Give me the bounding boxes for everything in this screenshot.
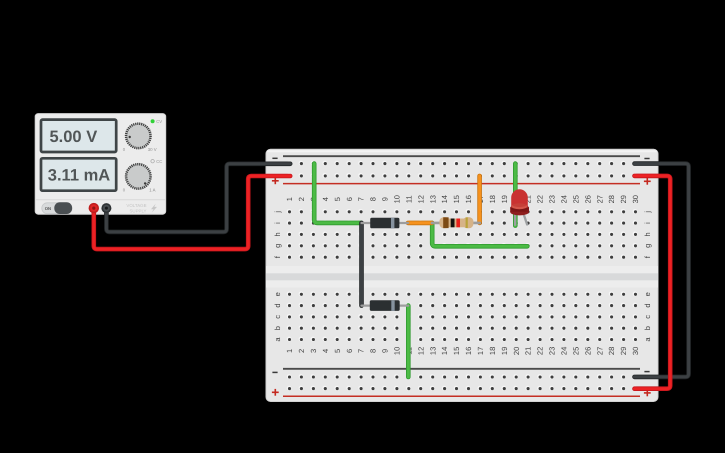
svg-text:c: c <box>273 315 282 319</box>
svg-text:j: j <box>643 211 652 214</box>
svg-text:CV: CV <box>156 119 162 124</box>
svg-text:15: 15 <box>452 347 461 355</box>
svg-text:2: 2 <box>297 349 306 353</box>
svg-text:1: 1 <box>285 349 294 353</box>
svg-text:23: 23 <box>548 195 557 203</box>
svg-text:18: 18 <box>488 347 497 355</box>
svg-text:28: 28 <box>607 347 616 355</box>
svg-text:27: 27 <box>595 347 604 355</box>
svg-text:6: 6 <box>345 197 354 201</box>
svg-text:22: 22 <box>536 347 545 355</box>
svg-text:5.00 V: 5.00 V <box>50 128 98 146</box>
svg-text:27: 27 <box>595 195 604 203</box>
svg-text:23: 23 <box>548 347 557 355</box>
svg-text:b: b <box>643 326 652 330</box>
svg-text:30: 30 <box>631 347 640 355</box>
svg-text:g: g <box>643 244 652 248</box>
svg-text:12: 12 <box>416 347 425 355</box>
svg-text:3: 3 <box>309 349 318 353</box>
svg-text:b: b <box>273 326 282 330</box>
svg-text:11: 11 <box>404 195 413 203</box>
svg-text:14: 14 <box>440 347 449 355</box>
svg-text:15: 15 <box>452 195 461 203</box>
svg-text:1: 1 <box>285 197 294 201</box>
svg-text:9: 9 <box>381 197 390 201</box>
svg-text:9: 9 <box>381 349 390 353</box>
svg-text:ON: ON <box>45 206 51 211</box>
svg-text:21: 21 <box>524 347 533 355</box>
svg-text:7: 7 <box>357 197 366 201</box>
svg-text:g: g <box>273 244 282 248</box>
svg-text:h: h <box>273 232 282 236</box>
svg-text:24: 24 <box>560 195 569 203</box>
svg-text:30 V: 30 V <box>148 147 157 152</box>
svg-text:4: 4 <box>321 349 330 353</box>
svg-text:14: 14 <box>440 195 449 203</box>
svg-text:13: 13 <box>428 347 437 355</box>
svg-text:SUPPLY: SUPPLY <box>129 208 146 213</box>
svg-text:30: 30 <box>631 195 640 203</box>
svg-text:VOLTAGE: VOLTAGE <box>126 203 146 208</box>
svg-text:16: 16 <box>464 195 473 203</box>
svg-text:d: d <box>273 304 282 308</box>
svg-text:1 A: 1 A <box>149 187 155 192</box>
svg-text:e: e <box>273 292 282 296</box>
svg-text:22: 22 <box>536 195 545 203</box>
svg-text:25: 25 <box>571 347 580 355</box>
svg-text:CC: CC <box>156 159 162 164</box>
svg-text:10: 10 <box>393 195 402 203</box>
svg-text:3.11 mA: 3.11 mA <box>48 166 110 184</box>
svg-text:18: 18 <box>488 195 497 203</box>
svg-text:e: e <box>643 292 652 296</box>
svg-text:5: 5 <box>333 197 342 201</box>
svg-text:2: 2 <box>297 197 306 201</box>
svg-text:5: 5 <box>333 349 342 353</box>
svg-text:20: 20 <box>512 347 521 355</box>
svg-text:28: 28 <box>607 195 616 203</box>
svg-text:h: h <box>643 232 652 236</box>
svg-text:25: 25 <box>571 195 580 203</box>
svg-text:29: 29 <box>619 195 628 203</box>
svg-text:16: 16 <box>464 347 473 355</box>
svg-text:10: 10 <box>393 347 402 355</box>
svg-text:26: 26 <box>583 195 592 203</box>
svg-text:d: d <box>643 304 652 308</box>
svg-text:29: 29 <box>619 347 628 355</box>
svg-text:j: j <box>273 211 282 214</box>
svg-text:8: 8 <box>369 197 378 201</box>
svg-text:7: 7 <box>357 349 366 353</box>
svg-text:c: c <box>643 315 652 319</box>
svg-text:8: 8 <box>369 349 378 353</box>
svg-text:6: 6 <box>345 349 354 353</box>
svg-text:4: 4 <box>321 197 330 201</box>
svg-text:26: 26 <box>583 347 592 355</box>
svg-text:24: 24 <box>560 347 569 355</box>
svg-text:19: 19 <box>500 347 509 355</box>
svg-text:12: 12 <box>416 195 425 203</box>
svg-text:13: 13 <box>428 195 437 203</box>
svg-text:19: 19 <box>500 195 509 203</box>
svg-text:17: 17 <box>476 347 485 355</box>
